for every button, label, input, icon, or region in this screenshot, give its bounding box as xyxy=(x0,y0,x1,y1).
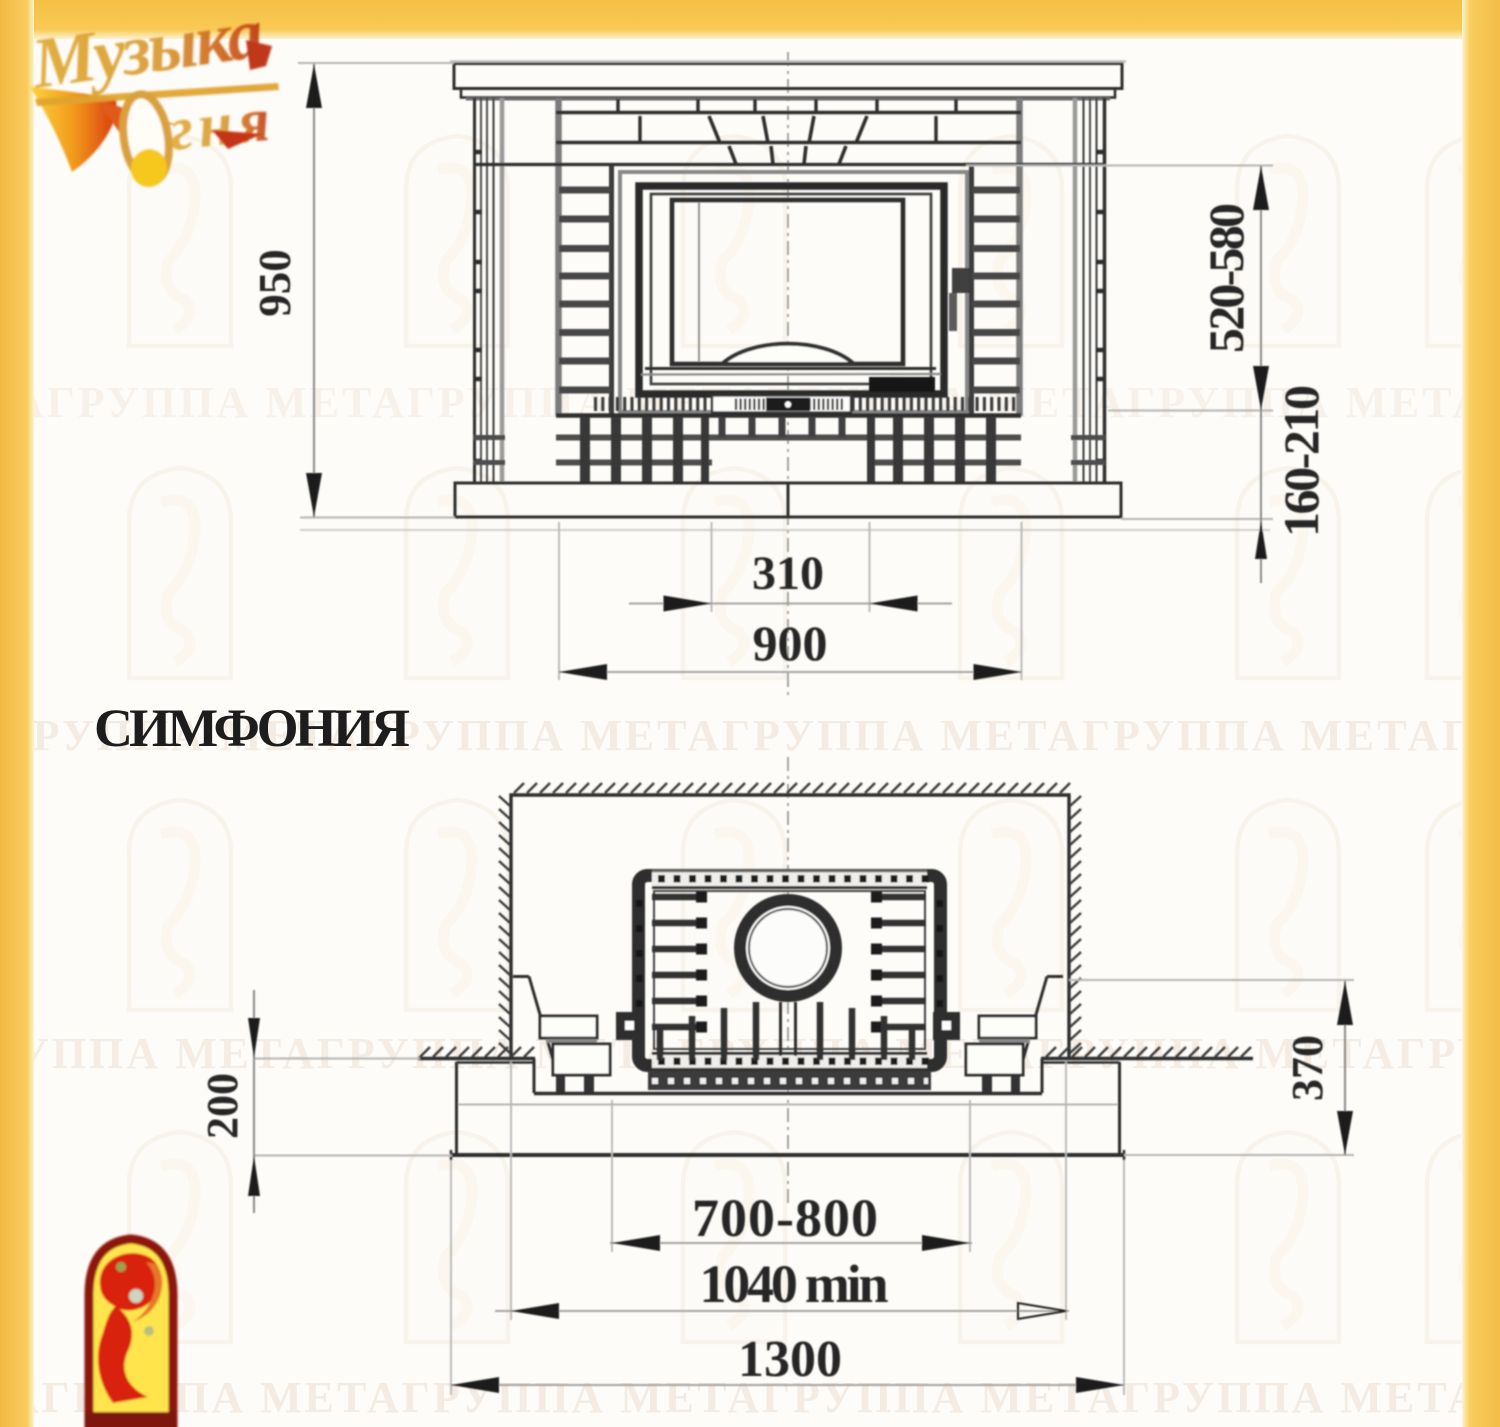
svg-text:370: 370 xyxy=(1283,1035,1332,1101)
svg-text:900: 900 xyxy=(753,615,828,671)
svg-text:950: 950 xyxy=(250,249,300,317)
svg-text:1040 min: 1040 min xyxy=(700,1254,889,1314)
svg-text:520-580: 520-580 xyxy=(1198,203,1254,353)
svg-text:160-210: 160-210 xyxy=(1273,385,1329,537)
svg-text:200: 200 xyxy=(198,1073,247,1139)
svg-text:1300: 1300 xyxy=(738,1331,842,1388)
svg-text:700-800: 700-800 xyxy=(692,1188,878,1248)
svg-text:310: 310 xyxy=(752,547,824,600)
svg-text:гня: гня xyxy=(166,86,273,164)
svg-text:СИМФОНИЯ: СИМФОНИЯ xyxy=(94,698,410,758)
